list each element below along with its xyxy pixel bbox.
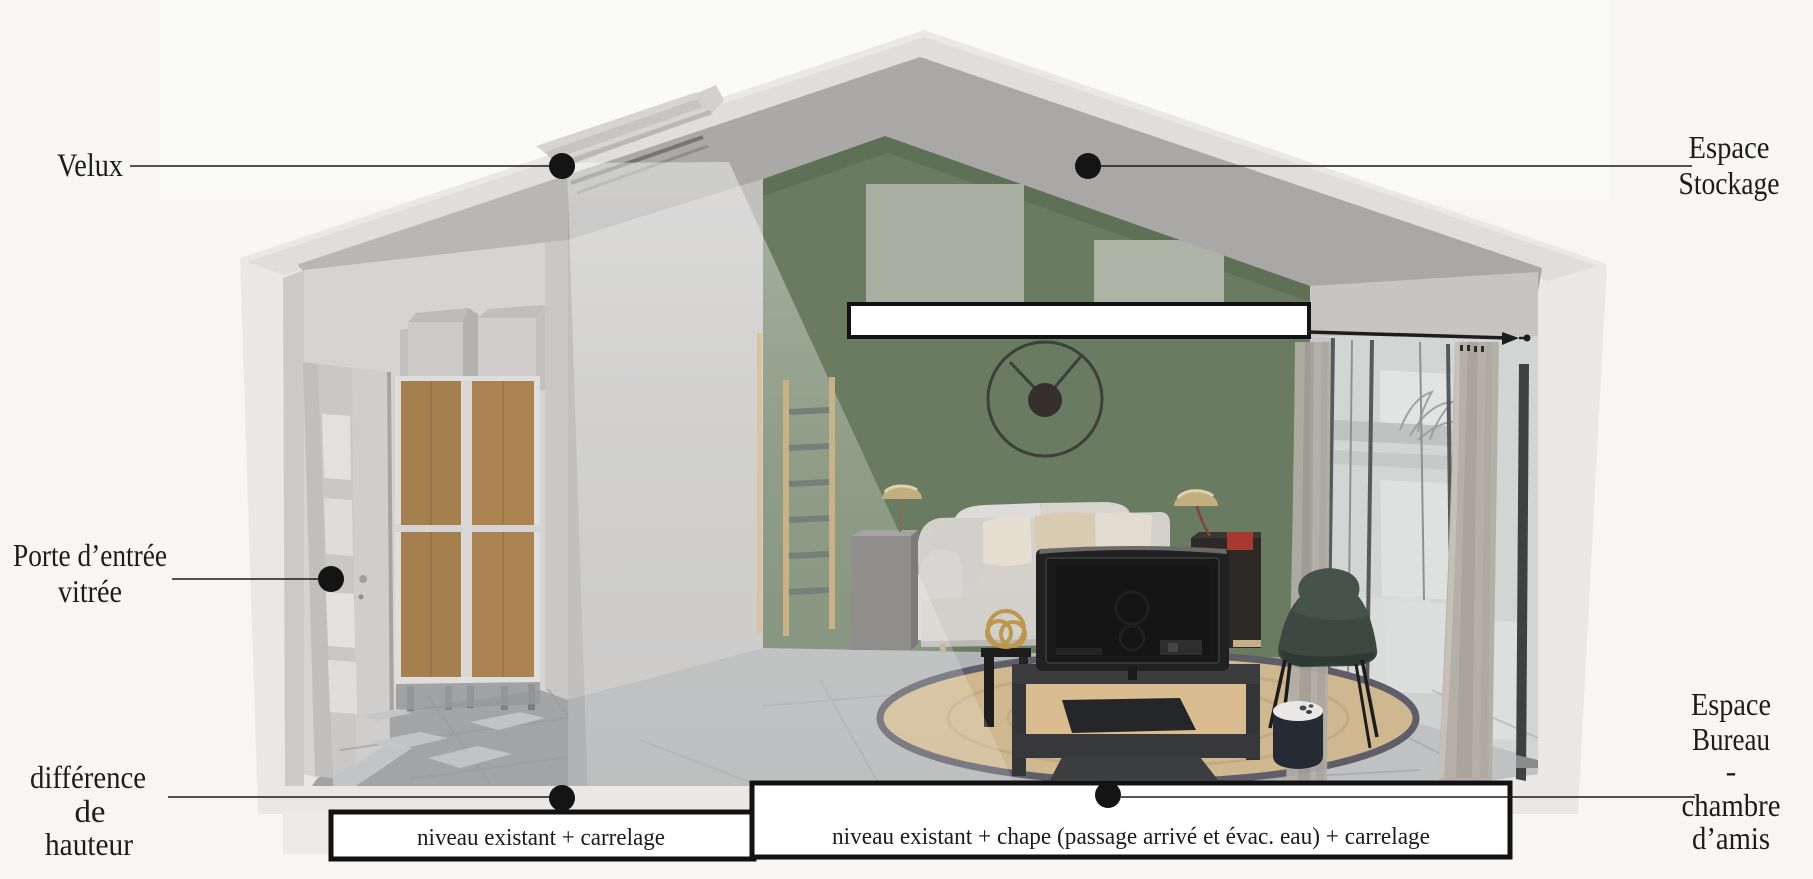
svg-text:-: -	[1726, 753, 1737, 789]
svg-text:Velux: Velux	[57, 148, 123, 184]
svg-text:Stockage: Stockage	[1679, 165, 1780, 201]
svg-text:chambre: chambre	[1682, 787, 1781, 823]
svg-text:de: de	[75, 793, 106, 829]
svg-text:niveau existant + carrelage: niveau existant + carrelage	[417, 825, 665, 851]
svg-text:Espace: Espace	[1689, 129, 1770, 165]
svg-text:Bureau: Bureau	[1692, 721, 1770, 757]
svg-text:d’amis: d’amis	[1692, 820, 1770, 856]
svg-text:hauteur: hauteur	[45, 826, 133, 862]
svg-text:vitrée: vitrée	[58, 573, 122, 609]
svg-text:Espace: Espace	[1691, 686, 1771, 722]
svg-text:niveau existant + chape (passa: niveau existant + chape (passage arrivé …	[832, 824, 1430, 850]
svg-text:Porte d’entrée: Porte d’entrée	[13, 537, 167, 573]
svg-text:différence: différence	[30, 759, 146, 795]
